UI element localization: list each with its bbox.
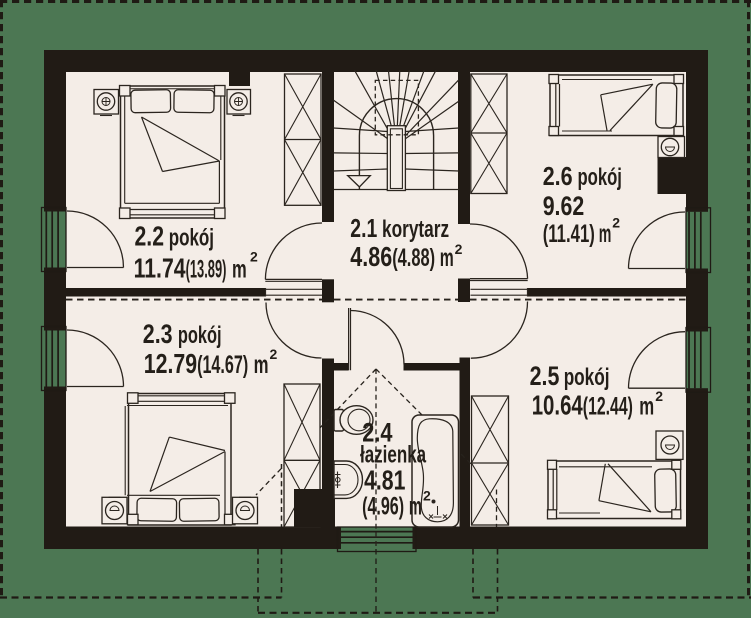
svg-text:(14.67): (14.67)	[197, 351, 248, 379]
svg-text:m: m	[639, 393, 654, 421]
svg-text:pokój: pokój	[564, 364, 610, 391]
svg-text:m: m	[599, 220, 612, 248]
svg-text:9.62: 9.62	[543, 191, 585, 221]
svg-text:4.81: 4.81	[364, 465, 405, 496]
svg-text:2: 2	[250, 249, 258, 265]
svg-text:pokój: pokój	[169, 225, 214, 252]
svg-text:10.64: 10.64	[532, 390, 583, 421]
svg-text:2: 2	[612, 215, 620, 231]
svg-text:pokój: pokój	[178, 322, 222, 349]
svg-text:2: 2	[655, 388, 663, 404]
svg-text:2.2: 2.2	[135, 221, 165, 252]
svg-text:2.1: 2.1	[350, 213, 377, 243]
svg-text:m: m	[232, 255, 247, 283]
svg-text:2.5: 2.5	[530, 361, 560, 391]
svg-text:(11.41): (11.41)	[543, 220, 595, 248]
svg-text:m: m	[440, 244, 454, 272]
svg-text:2: 2	[423, 488, 431, 504]
svg-text:pokój: pokój	[578, 164, 622, 191]
svg-text:2.6: 2.6	[543, 161, 573, 191]
svg-text:4.86: 4.86	[350, 241, 392, 272]
svg-text:2: 2	[270, 346, 278, 362]
svg-text:m: m	[409, 492, 422, 520]
svg-text:(4.88): (4.88)	[392, 244, 435, 272]
svg-text:korytarz: korytarz	[382, 216, 449, 243]
svg-text:m: m	[254, 351, 269, 379]
svg-text:(13.89): (13.89)	[186, 255, 227, 283]
svg-text:12.79: 12.79	[144, 348, 197, 379]
svg-text:11.74: 11.74	[134, 252, 186, 283]
svg-text:2: 2	[455, 241, 463, 257]
svg-text:(12.44): (12.44)	[583, 393, 633, 421]
svg-text:2.3: 2.3	[143, 319, 173, 349]
svg-text:(4.96): (4.96)	[362, 492, 404, 520]
